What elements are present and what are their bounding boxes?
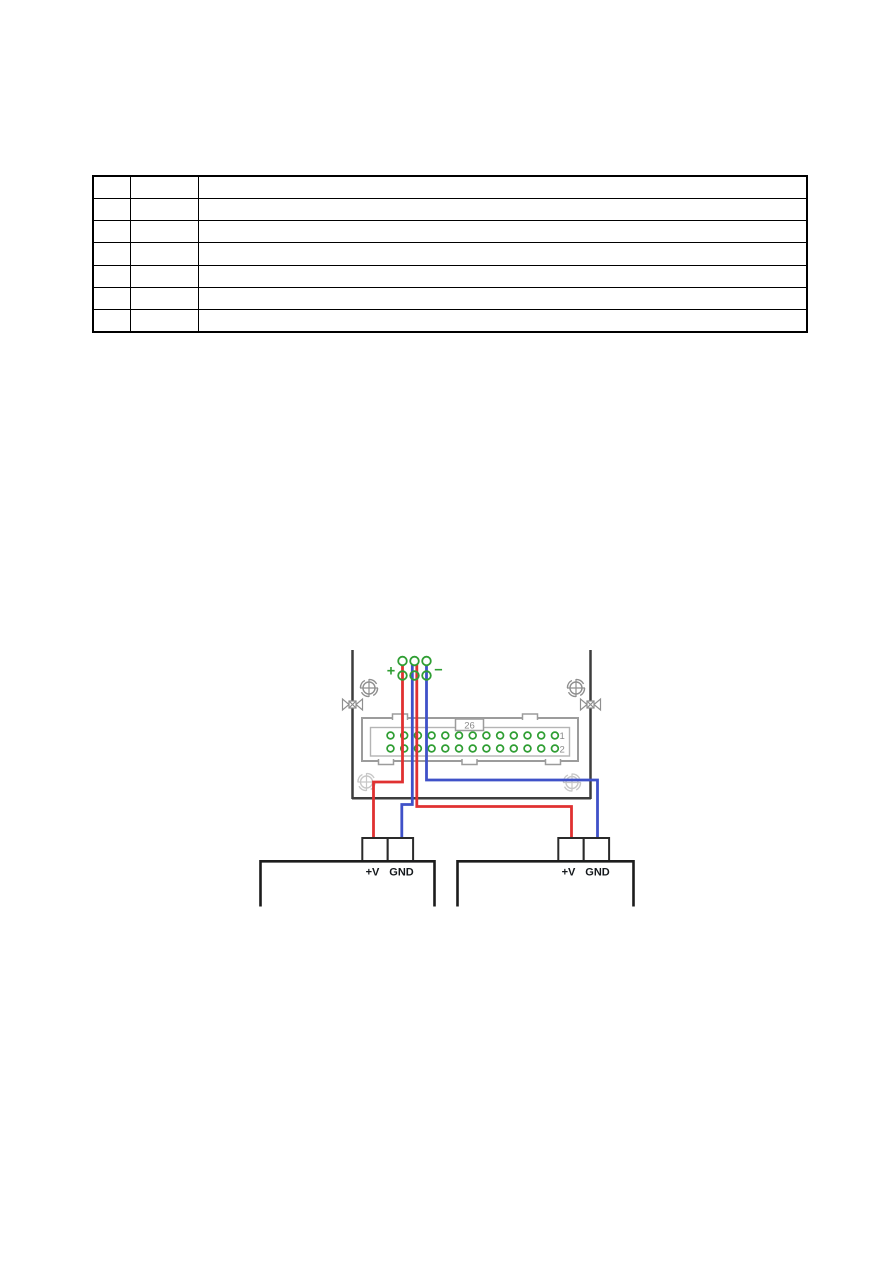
terminal-top-hole (410, 657, 419, 666)
edge-marker-icon (581, 699, 601, 710)
connector-top-tab (523, 714, 538, 720)
psu2-positive-terminal (558, 838, 583, 862)
connector-pin (510, 745, 517, 752)
connector-pin (456, 732, 463, 739)
connector-pin (469, 745, 476, 752)
pin-row2-label: 2 (560, 745, 565, 756)
power-supply-2: +V GND (458, 838, 634, 907)
connector-pin (469, 732, 476, 739)
terminal-top-hole (398, 657, 407, 666)
connector-bottom-tab (546, 759, 561, 765)
edge-marker-icon (343, 699, 363, 710)
connector-pin (538, 732, 545, 739)
document-page: 26 1 2 + − (0, 0, 893, 1263)
pin-row1-label: 1 (560, 731, 565, 742)
connector-pin (428, 732, 435, 739)
connector-pin (552, 732, 559, 739)
connector-top-tab (393, 714, 408, 720)
connector-pin (552, 745, 559, 752)
psu1-ground-terminal (388, 838, 413, 862)
wiring-diagram: 26 1 2 + − (0, 0, 893, 1263)
power-supply-1: +V GND (261, 838, 435, 907)
screw-icon (360, 679, 378, 697)
psu1-gnd-label: GND (389, 867, 414, 879)
terminal-top-hole (422, 657, 431, 666)
connector-pin (483, 745, 490, 752)
power-terminal-block: + − (387, 657, 443, 680)
connector-pin (442, 732, 449, 739)
connector-pin (497, 732, 504, 739)
connector-count-label: 26 (464, 720, 475, 731)
psu2-gnd-label: GND (585, 867, 610, 879)
screw-faded-icon (563, 774, 581, 792)
screw-icon (567, 679, 585, 697)
connector-pin (497, 745, 504, 752)
connector-pin (456, 745, 463, 752)
connector-pin (387, 745, 394, 752)
connector-pin (483, 732, 490, 739)
connector-pin (510, 732, 517, 739)
connector-pin (524, 745, 531, 752)
plus-polarity-label: + (387, 664, 395, 680)
connector-pin (428, 745, 435, 752)
connector-pin (442, 745, 449, 752)
header-connector: 26 1 2 (362, 714, 578, 765)
psu2-plus-label: +V (562, 867, 576, 879)
connector-bottom-tab (379, 759, 394, 765)
minus-polarity-label: − (434, 663, 442, 679)
connector-bottom-tab (462, 759, 477, 765)
connector-pin (538, 745, 545, 752)
psu1-positive-terminal (362, 838, 387, 862)
psu1-plus-label: +V (366, 867, 380, 879)
connector-pin (524, 732, 531, 739)
connector-pin (387, 732, 394, 739)
psu2-ground-terminal (584, 838, 609, 862)
